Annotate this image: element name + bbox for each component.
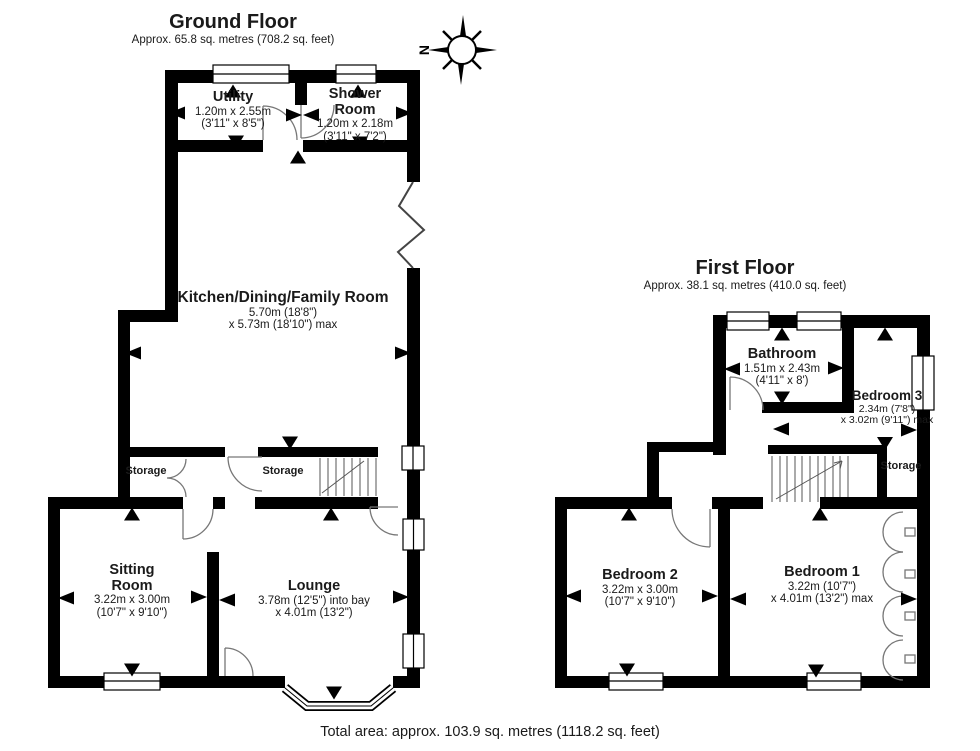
floorplan-drawing: N [0,0,980,751]
first-floor-walls [555,315,930,688]
total-area-label: Total area: approx. 103.9 sq. metres (11… [320,725,660,741]
wardrobe-doors-icon [883,512,915,680]
room-label-storage-first-floor: Storage [881,461,922,473]
room-label-bathroom: Bathroom 1.51m x 2.43m (4'11" x 8') [744,347,820,387]
room-label-storage-hall: Storage [263,466,304,478]
room-label-storage-left: Storage [126,466,167,478]
wall-break-icon [398,182,424,268]
floorplan-page: N Ground Floor Approx. 65.8 sq. metres (… [0,0,980,751]
first-floor-title: First Floor Approx. 38.1 sq. metres (410… [644,258,847,292]
first-floor-stairs-icon [772,456,848,502]
ground-floor-subtitle: Approx. 65.8 sq. metres (708.2 sq. feet) [132,34,335,46]
ground-floor-title: Ground Floor Approx. 65.8 sq. metres (70… [132,12,335,46]
room-label-bedroom1: Bedroom 1 3.22m (10'7") x 4.01m (13'2") … [771,565,873,605]
room-label-shower-room: Shower Room 1.20m x 2.18m (3'11" x 7'2") [317,87,393,143]
room-label-sitting-room: Sitting Room 3.22m x 3.00m (10'7" x 9'10… [94,563,170,619]
compass-icon: N [416,15,497,85]
room-label-utility: Utility 1.20m x 2.55m (3'11" x 8'5") [195,90,271,130]
room-label-kitchen-dining-family: Kitchen/Dining/Family Room 5.70m (18'8")… [168,290,398,332]
room-label-bedroom2: Bedroom 2 3.22m x 3.00m (10'7" x 9'10") [602,568,678,608]
first-floor-subtitle: Approx. 38.1 sq. metres (410.0 sq. feet) [644,280,847,292]
room-label-lounge: Lounge 3.78m (12'5") into bay x 4.01m (1… [258,579,370,619]
ground-floor-stairs-icon [320,458,376,496]
compass-north-label: N [416,45,432,55]
room-label-bedroom3: Bedroom 3 2.34m (7'8") x 3.02m (9'11") m… [841,389,934,426]
